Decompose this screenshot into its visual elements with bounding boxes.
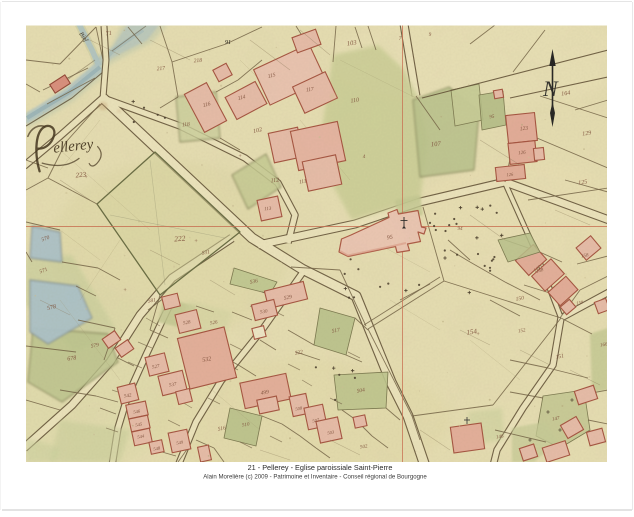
svg-text:Alain Morelière (c) 2009 - Pat: Alain Morelière (c) 2009 - Patrimoine et… [203, 474, 427, 481]
svg-text:21 - Pellerey - Eglise paroiss: 21 - Pellerey - Eglise paroissiale Saint… [248, 463, 393, 472]
